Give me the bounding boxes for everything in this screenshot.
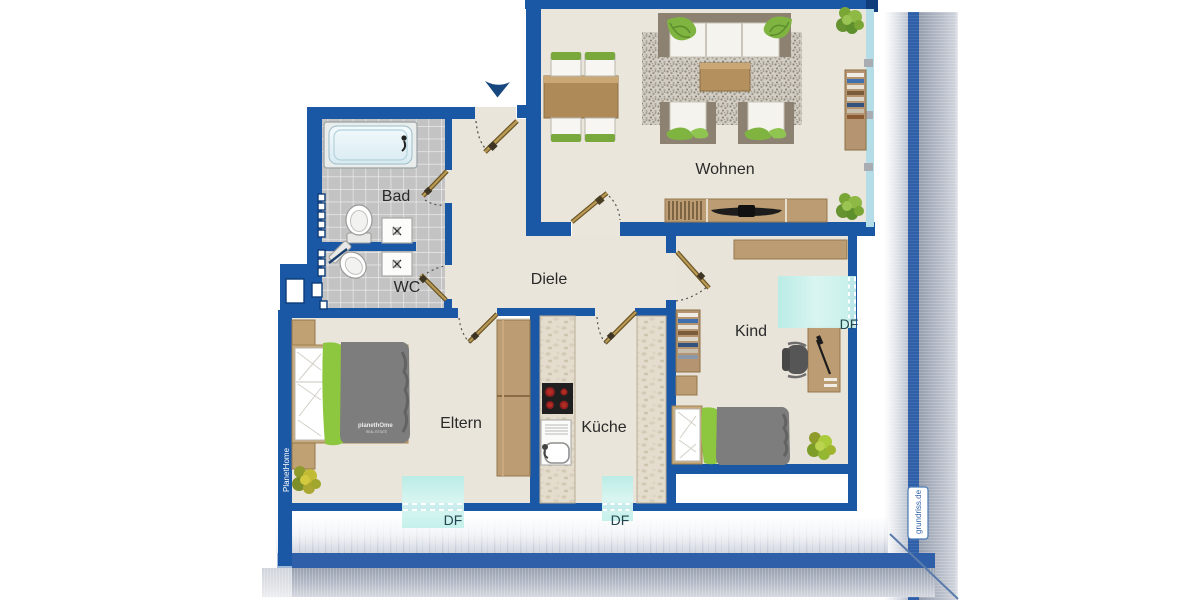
svg-text:PlanetHome: PlanetHome: [282, 447, 291, 492]
svg-text:DF: DF: [840, 316, 859, 332]
svg-text:Eltern: Eltern: [440, 415, 482, 432]
svg-text:DF: DF: [444, 512, 463, 528]
svg-text:planethOme: planethOme: [358, 423, 393, 429]
svg-text:grundriss.de: grundriss.de: [914, 489, 923, 534]
svg-text:Bad: Bad: [382, 188, 410, 205]
svg-text:Wohnen: Wohnen: [695, 161, 754, 178]
svg-text:Kind: Kind: [735, 323, 767, 340]
svg-text:WC: WC: [394, 279, 421, 296]
svg-text:DF: DF: [611, 512, 630, 528]
svg-text:Diele: Diele: [531, 271, 568, 288]
svg-text:Küche: Küche: [581, 419, 626, 436]
svg-text:REAL ESTATE: REAL ESTATE: [366, 430, 387, 434]
